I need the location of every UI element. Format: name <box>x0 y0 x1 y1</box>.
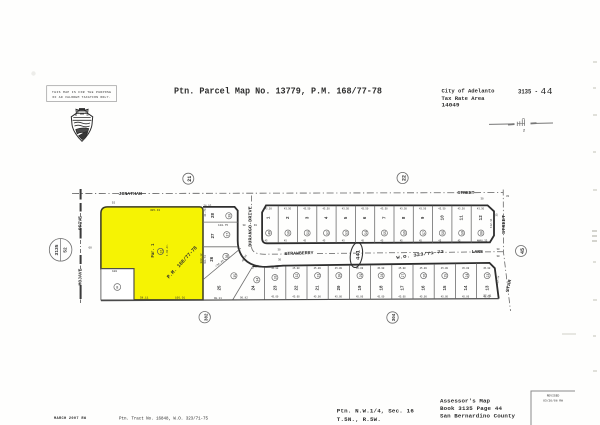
svg-text:1.61 AC.: 1.61 AC. <box>166 244 169 256</box>
svg-text:12: 12 <box>480 215 484 221</box>
svg-text:43.50: 43.50 <box>458 207 466 210</box>
svg-text:45.00: 45.00 <box>462 296 470 299</box>
svg-text:22: 22 <box>401 175 407 181</box>
svg-text:441: 441 <box>355 249 362 260</box>
svg-text:35: 35 <box>233 274 237 278</box>
svg-text:49: 49 <box>267 231 271 235</box>
svg-text:92: 92 <box>112 202 116 205</box>
svg-text:MARCH 2007 RW: MARCH 2007 RW <box>54 417 87 421</box>
svg-text:13: 13 <box>486 285 490 291</box>
svg-text:50: 50 <box>287 231 291 235</box>
svg-text:43.50: 43.50 <box>477 207 485 210</box>
svg-text:21: 21 <box>187 176 193 182</box>
svg-text:25: 25 <box>219 285 223 291</box>
svg-text:45.00: 45.00 <box>462 267 470 270</box>
svg-text:55: 55 <box>383 231 387 235</box>
svg-text:14: 14 <box>465 285 469 291</box>
svg-text:STRAWBERRY: STRAWBERRY <box>284 250 314 257</box>
svg-text:43.50: 43.50 <box>284 207 292 210</box>
svg-text:43.50: 43.50 <box>265 207 273 210</box>
svg-text:100: 100 <box>112 270 117 273</box>
svg-text:59: 59 <box>460 231 464 235</box>
svg-text:11: 11 <box>461 215 465 221</box>
svg-text:20: 20 <box>338 285 342 291</box>
svg-text:43.50: 43.50 <box>303 207 311 210</box>
svg-text:56: 56 <box>403 231 407 235</box>
svg-text:10: 10 <box>441 215 445 221</box>
svg-text:31: 31 <box>160 249 164 253</box>
svg-text:27: 27 <box>401 274 405 278</box>
svg-text:MOJAVE: MOJAVE <box>78 268 84 285</box>
svg-text:45.00: 45.00 <box>483 267 491 270</box>
svg-text:30: 30 <box>254 224 258 227</box>
svg-text:37: 37 <box>226 233 230 237</box>
svg-text:45.00: 45.00 <box>292 296 300 299</box>
svg-text:45.00: 45.00 <box>441 267 449 270</box>
svg-text:302: 302 <box>205 313 209 321</box>
svg-text:JONATHAN: JONATHAN <box>119 191 143 197</box>
svg-text:44: 44 <box>541 86 553 97</box>
svg-text:Par. 1: Par. 1 <box>150 243 156 257</box>
svg-text:51: 51 <box>306 231 310 235</box>
svg-text:26: 26 <box>422 274 426 278</box>
svg-text:DURANGO-DRIVE: DURANGO-DRIVE <box>247 206 253 247</box>
svg-text:52: 52 <box>325 231 329 235</box>
svg-text:58.11: 58.11 <box>140 297 149 300</box>
svg-text:30: 30 <box>243 224 247 227</box>
svg-text:30: 30 <box>278 258 282 261</box>
svg-text:24: 24 <box>252 285 256 291</box>
svg-text:27: 27 <box>212 233 216 239</box>
svg-text:LANE: LANE <box>472 249 484 255</box>
svg-text:STREET: STREET <box>458 190 475 196</box>
svg-text:45.00: 45.00 <box>356 267 364 270</box>
svg-text:45: 45 <box>520 248 526 254</box>
svg-text:304: 304 <box>393 313 397 321</box>
svg-text:33: 33 <box>506 195 510 198</box>
svg-text:38: 38 <box>228 214 232 218</box>
svg-text:Ptn. N.W.1/4, Sec. 16: Ptn. N.W.1/4, Sec. 16 <box>337 408 415 415</box>
svg-text:3135: 3135 <box>54 244 60 255</box>
svg-text:Ptn. Tract No. 16848, W.O. 323: Ptn. Tract No. 16848, W.O. 323/71-75 <box>119 417 208 422</box>
svg-text:45.00: 45.00 <box>335 267 343 270</box>
svg-text:15: 15 <box>444 285 448 291</box>
svg-text:16: 16 <box>423 285 427 291</box>
svg-text:19: 19 <box>359 285 363 291</box>
svg-text:Book 3135 Page 44: Book 3135 Page 44 <box>440 405 503 412</box>
svg-text:DRIVE: DRIVE <box>78 216 84 230</box>
svg-text:43.50: 43.50 <box>323 207 331 210</box>
svg-text:THIS MAP IS FOR THE PURPOSE: THIS MAP IS FOR THE PURPOSE <box>52 91 111 94</box>
svg-text:3135 -: 3135 - <box>518 89 538 96</box>
svg-text:43.50: 43.50 <box>438 207 446 210</box>
svg-text:25: 25 <box>444 274 448 278</box>
svg-text:28: 28 <box>212 213 216 219</box>
svg-text:45.00: 45.00 <box>420 267 428 270</box>
svg-text:110.75: 110.75 <box>218 224 228 227</box>
svg-text:54: 54 <box>364 231 368 235</box>
svg-text:90.82: 90.82 <box>240 297 248 300</box>
svg-text:31: 31 <box>316 274 320 278</box>
svg-text:45.00: 45.00 <box>356 296 364 299</box>
svg-text:43.50: 43.50 <box>400 207 408 210</box>
svg-text:23: 23 <box>274 285 278 291</box>
svg-text:OF AD VALOREM TAXATION ONLY.: OF AD VALOREM TAXATION ONLY. <box>53 96 111 99</box>
svg-text:45.00: 45.00 <box>335 296 343 299</box>
svg-text:60: 60 <box>89 247 93 250</box>
svg-text:45.00: 45.00 <box>398 267 406 270</box>
svg-text:STREET: STREET <box>501 215 507 234</box>
svg-text:45.00: 45.00 <box>441 296 449 299</box>
svg-text:45.00: 45.00 <box>377 296 385 299</box>
svg-text:60: 60 <box>480 231 484 235</box>
svg-text:24: 24 <box>465 274 469 278</box>
svg-text:Assessor's Map: Assessor's Map <box>440 398 491 405</box>
svg-text:City of Adelanto: City of Adelanto <box>442 87 496 94</box>
svg-text:36: 36 <box>225 255 229 259</box>
svg-text:45.00: 45.00 <box>314 296 322 299</box>
svg-text:REVISED: REVISED <box>547 394 560 397</box>
svg-text:33: 33 <box>274 276 278 280</box>
svg-text:43.50: 43.50 <box>361 207 369 210</box>
svg-text:305.43: 305.43 <box>150 209 160 212</box>
svg-text:14049: 14049 <box>442 101 460 108</box>
svg-text:03/26/08 RW: 03/26/08 RW <box>543 398 563 402</box>
svg-text:45.00: 45.00 <box>292 267 300 270</box>
svg-text:+48.33: +48.33 <box>478 240 488 243</box>
svg-text:San Bernardino County: San Bernardino County <box>440 413 516 420</box>
svg-text:28: 28 <box>380 274 384 278</box>
svg-text:45.00: 45.00 <box>377 267 385 270</box>
svg-text:30: 30 <box>338 274 342 278</box>
svg-text:43.50: 43.50 <box>419 207 427 210</box>
svg-text:22: 22 <box>296 285 300 291</box>
svg-text:52.41: 52.41 <box>484 295 492 298</box>
svg-text:34: 34 <box>256 278 260 282</box>
svg-text:45.00: 45.00 <box>271 267 279 270</box>
svg-text:26: 26 <box>211 256 215 262</box>
svg-text:30: 30 <box>481 198 485 201</box>
svg-text:30: 30 <box>497 255 501 258</box>
svg-text:T.5N., R.5W.: T.5N., R.5W. <box>337 416 381 423</box>
svg-text:21: 21 <box>317 285 321 291</box>
svg-text:35: 35 <box>496 213 499 217</box>
svg-text:43.50: 43.50 <box>342 207 350 210</box>
svg-text:30: 30 <box>497 248 501 251</box>
svg-text:23: 23 <box>486 274 490 278</box>
svg-text:45.00: 45.00 <box>420 296 428 299</box>
svg-text:32: 32 <box>295 274 299 278</box>
svg-text:17: 17 <box>402 285 406 291</box>
svg-text:53: 53 <box>345 231 349 235</box>
svg-text:29: 29 <box>359 274 363 278</box>
svg-text:58: 58 <box>441 231 445 235</box>
svg-text:45.00: 45.00 <box>398 296 406 299</box>
svg-text:45.00: 45.00 <box>314 267 322 270</box>
svg-text:57: 57 <box>422 231 426 235</box>
svg-text:45.00: 45.00 <box>271 296 279 299</box>
svg-text:18: 18 <box>380 285 384 291</box>
svg-text:30: 30 <box>278 248 282 251</box>
svg-text:112.14: 112.14 <box>490 218 493 228</box>
svg-text:166.01: 166.01 <box>175 297 185 300</box>
svg-text:90.74: 90.74 <box>204 255 207 264</box>
svg-text:300.12: 300.12 <box>200 253 203 263</box>
svg-text:Ptn. Parcel Map No. 13779, P.M: Ptn. Parcel Map No. 13779, P.M. 168/77-7… <box>174 85 382 96</box>
svg-text:41.74: 41.74 <box>204 208 207 217</box>
svg-text:52: 52 <box>63 247 69 253</box>
svg-text:43.50: 43.50 <box>380 207 388 210</box>
